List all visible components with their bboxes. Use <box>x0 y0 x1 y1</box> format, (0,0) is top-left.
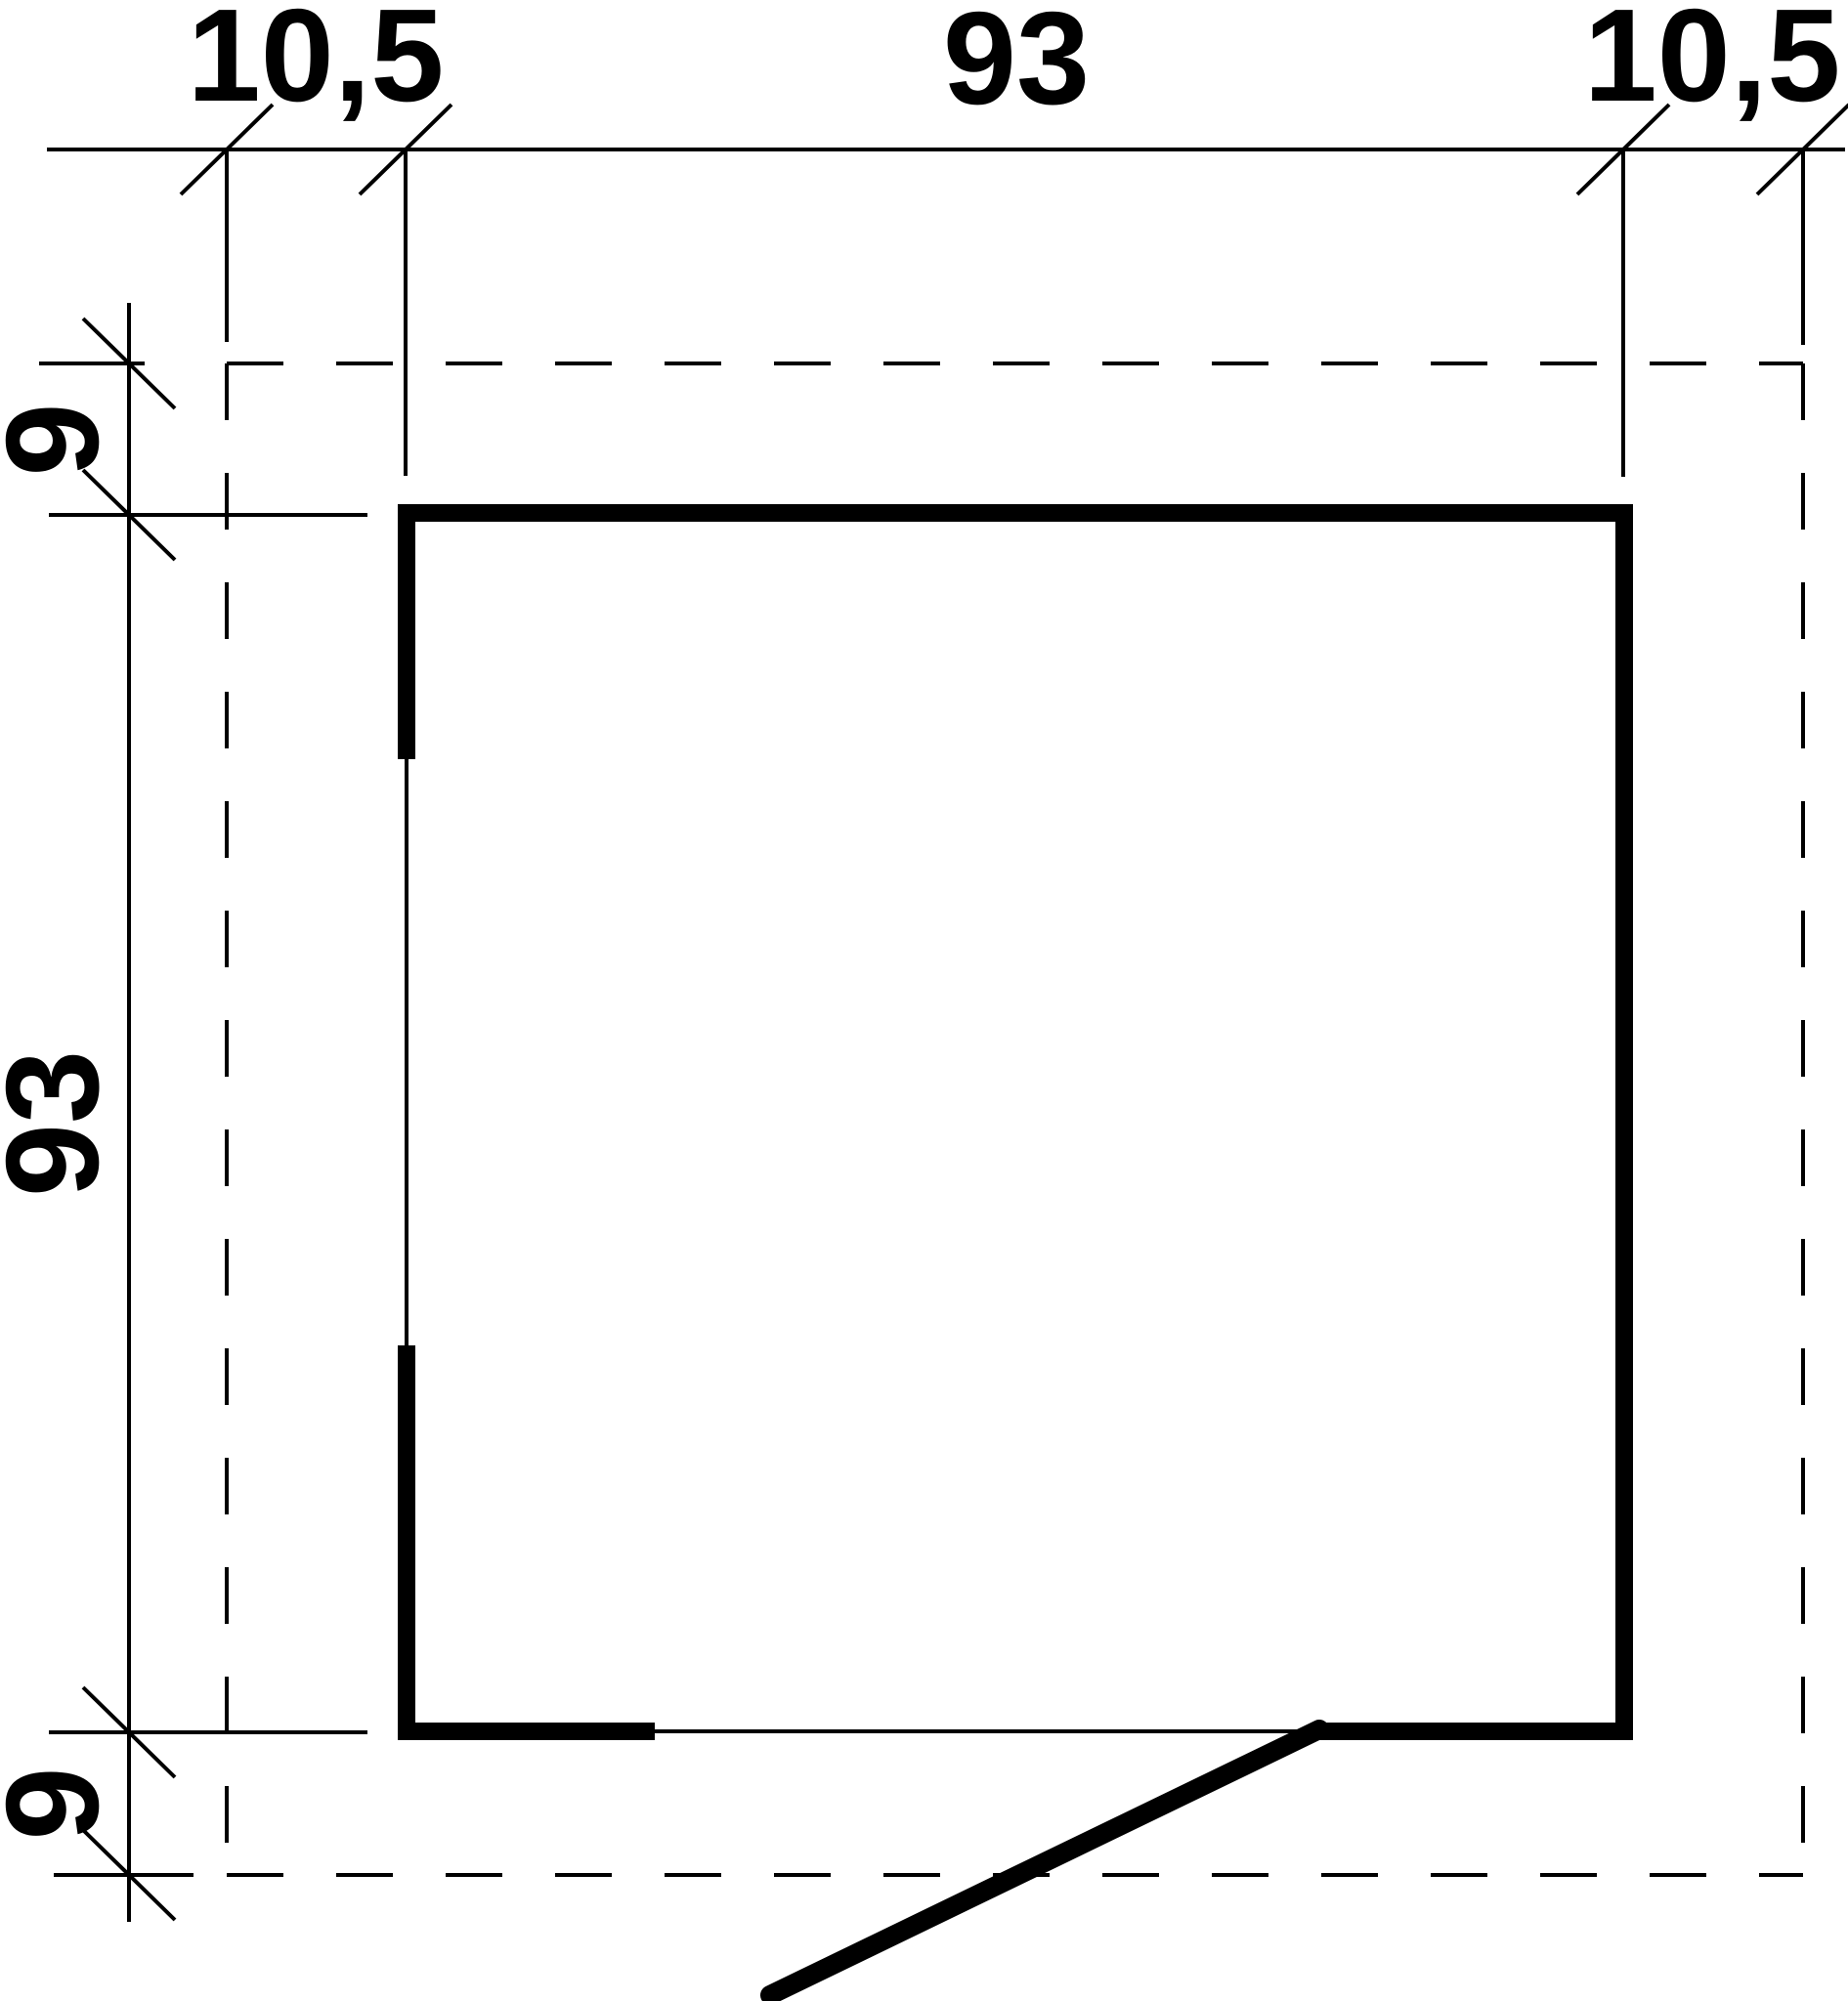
dimension-value-left-top: 9 <box>0 403 126 476</box>
dimension-value-top-middle: 93 <box>943 0 1090 132</box>
dimension-value-top-left: 10,5 <box>188 0 445 129</box>
dimension-value-left-bottom: 9 <box>0 1767 126 1840</box>
roof-overhang-dashed-outline <box>227 363 1803 1875</box>
opening-lines <box>407 759 1317 1731</box>
top-dimension-chain: 10,5 93 10,5 <box>47 0 1848 477</box>
dimension-value-left-middle: 93 <box>0 1050 126 1197</box>
left-dimension-chain: 9 93 9 <box>0 303 367 1922</box>
floor-plan-svg: 10,5 93 10,5 9 93 9 <box>0 0 1848 2001</box>
wall-outline <box>398 504 1633 1740</box>
floor-plan-drawing: 10,5 93 10,5 9 93 9 <box>0 0 1848 2001</box>
door-leaf-line <box>770 1729 1319 1995</box>
dimension-value-top-right: 10,5 <box>1584 0 1841 129</box>
